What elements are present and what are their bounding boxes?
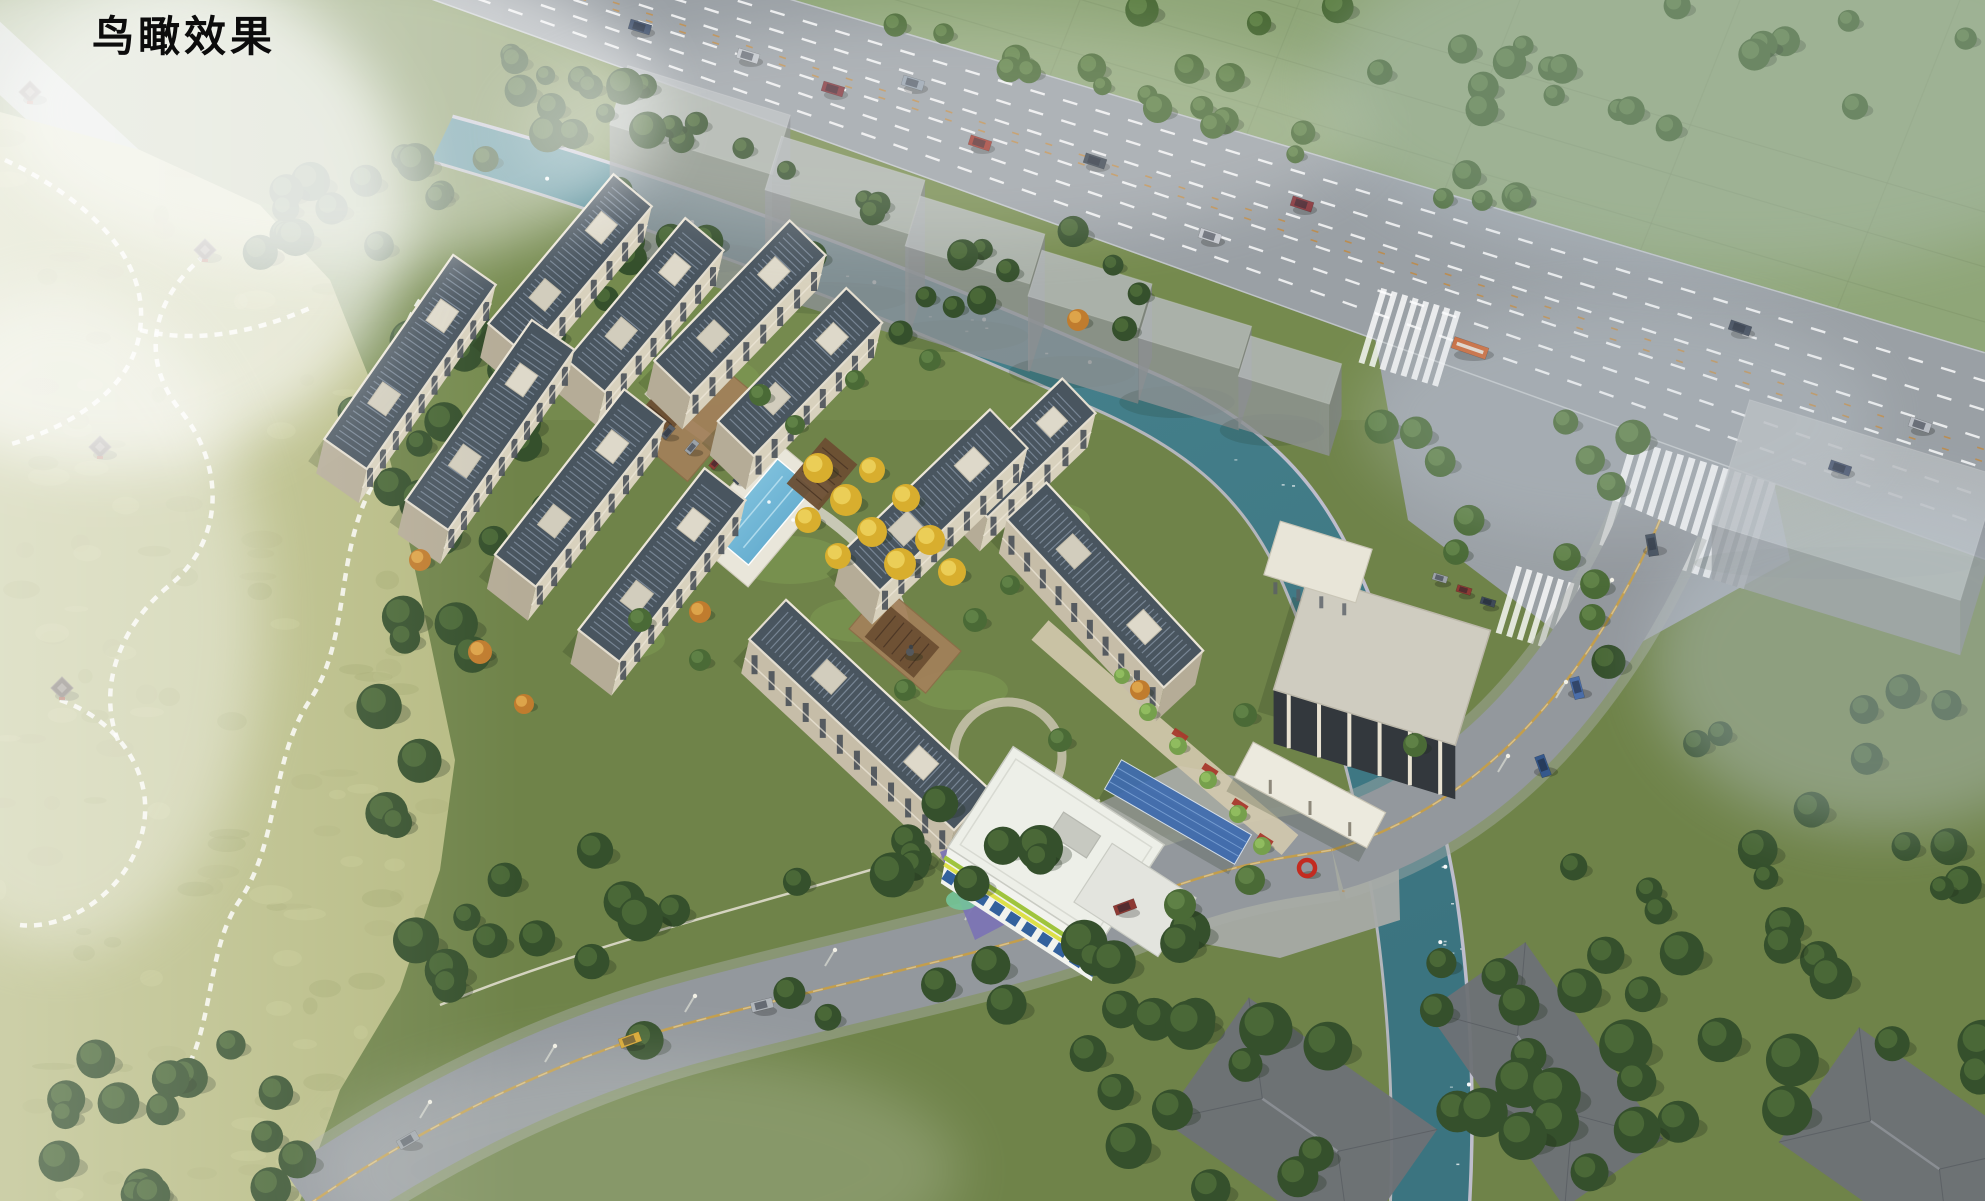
swan — [1443, 865, 1447, 869]
aerial-rendering: 鸟瞰效果 — [0, 0, 1985, 1201]
page-title: 鸟瞰效果 — [92, 12, 276, 62]
swan — [1438, 940, 1442, 944]
left-mist — [0, 0, 520, 1201]
scene-svg — [0, 0, 1985, 1201]
swan — [1467, 1082, 1471, 1086]
